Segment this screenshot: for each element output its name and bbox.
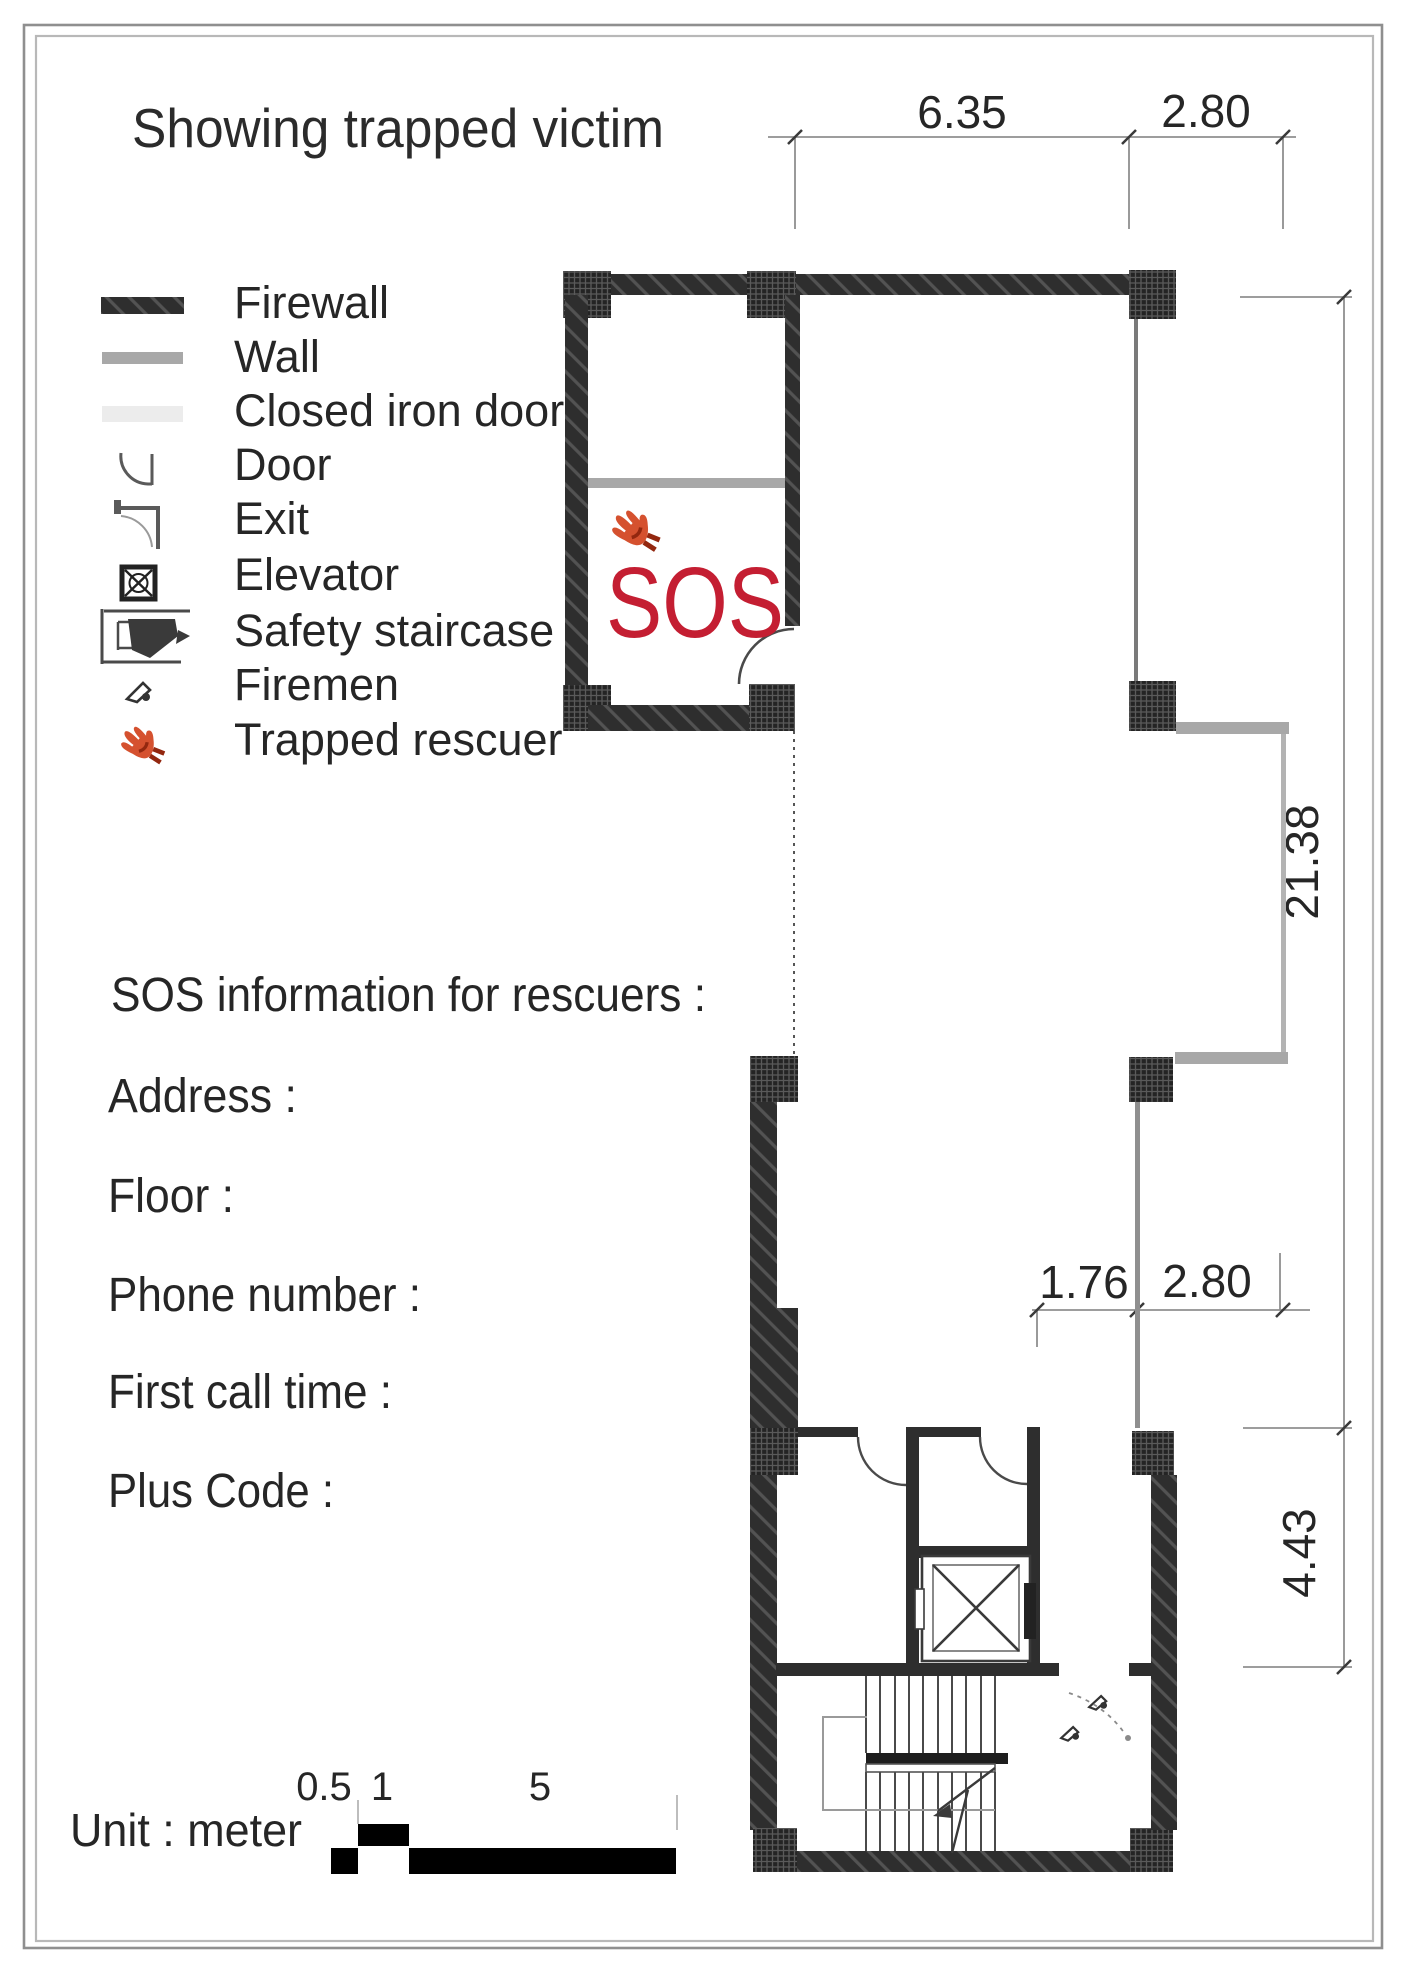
svg-text:Firewall: Firewall: [234, 277, 389, 328]
svg-text:Safety staircase: Safety staircase: [234, 605, 554, 656]
svg-text:Closed iron door: Closed iron door: [234, 385, 564, 436]
svg-text:Plus Code :: Plus Code :: [108, 1465, 334, 1518]
svg-text:0.5: 0.5: [296, 1765, 352, 1809]
svg-text:Door: Door: [234, 439, 332, 490]
svg-text:Phone number :: Phone number :: [108, 1269, 421, 1322]
svg-text:4.43: 4.43: [1273, 1508, 1325, 1598]
svg-text:Exit: Exit: [234, 493, 310, 544]
svg-text:First call time :: First call time :: [108, 1366, 392, 1419]
svg-text:Wall: Wall: [234, 331, 320, 382]
svg-text:Elevator: Elevator: [234, 549, 399, 600]
svg-text:1: 1: [371, 1765, 393, 1809]
svg-text:Showing trapped victim: Showing trapped victim: [132, 97, 664, 159]
svg-text:Address :: Address :: [108, 1070, 297, 1123]
svg-text:Trapped rescuer: Trapped rescuer: [234, 714, 563, 765]
svg-text:5: 5: [529, 1765, 551, 1809]
svg-text:2.80: 2.80: [1161, 85, 1251, 137]
svg-text:Firemen: Firemen: [234, 659, 399, 710]
svg-text:SOS information for rescuers :: SOS information for rescuers :: [111, 969, 706, 1022]
svg-text:2.80: 2.80: [1162, 1255, 1252, 1307]
svg-text:1.76: 1.76: [1039, 1256, 1129, 1308]
svg-text:SOS: SOS: [606, 547, 784, 659]
svg-text:Unit : meter: Unit : meter: [70, 1804, 302, 1856]
svg-text:6.35: 6.35: [917, 86, 1007, 138]
svg-text:Floor :: Floor :: [108, 1170, 234, 1223]
